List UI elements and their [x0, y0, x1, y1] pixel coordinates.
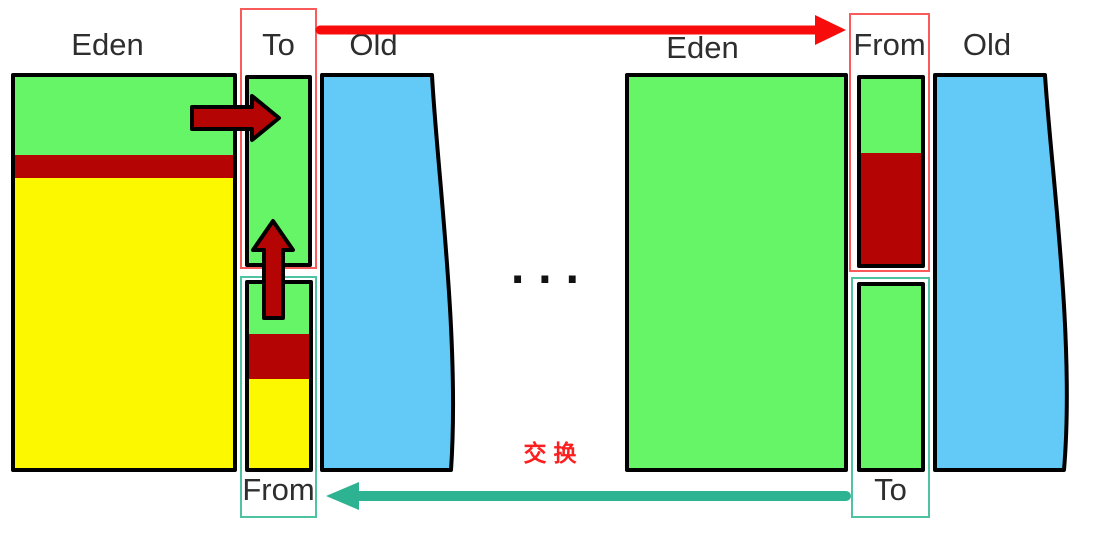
swap-text-label: 交换 — [500, 441, 600, 466]
swap-arrow-bottom-head-icon — [326, 482, 359, 510]
old-label-right: Old — [933, 29, 1041, 62]
eden-label-right: Eden — [645, 32, 760, 65]
swap-arrow-top-head-icon — [815, 15, 846, 45]
memory-segment-dark-red — [249, 334, 309, 379]
memory-segment-yellow — [15, 178, 233, 468]
survivor-to-region-right — [857, 282, 925, 472]
gc-survivor-swap-diagram: Eden To Old From Eden From Old To ... 交换 — [0, 0, 1099, 535]
survivor-from-region-left — [245, 280, 313, 472]
survivor-from-label-right: From — [849, 29, 930, 62]
memory-segment-green — [629, 77, 844, 468]
eden-label-left: Eden — [45, 29, 170, 62]
continuation-ellipsis: ... — [505, 248, 567, 290]
survivor-to-region-left — [245, 75, 312, 267]
memory-segment-green — [249, 284, 309, 334]
survivor-to-label-left: To — [240, 29, 317, 62]
memory-segment-dark-red — [15, 155, 233, 178]
eden-region-left — [11, 73, 237, 472]
survivor-from-label-left: From — [239, 474, 318, 507]
memory-segment-green — [861, 286, 921, 468]
old-region-right — [935, 75, 1067, 470]
memory-segment-dark-red — [861, 153, 921, 264]
survivor-from-region-right — [857, 75, 925, 268]
survivor-to-label-right: To — [851, 474, 930, 507]
old-region-left — [322, 75, 453, 470]
memory-segment-green — [15, 77, 233, 155]
memory-segment-yellow — [249, 379, 309, 468]
old-label-left: Old — [321, 29, 426, 62]
memory-segment-green — [861, 79, 921, 153]
eden-region-right — [625, 73, 848, 472]
memory-segment-green — [249, 79, 308, 263]
